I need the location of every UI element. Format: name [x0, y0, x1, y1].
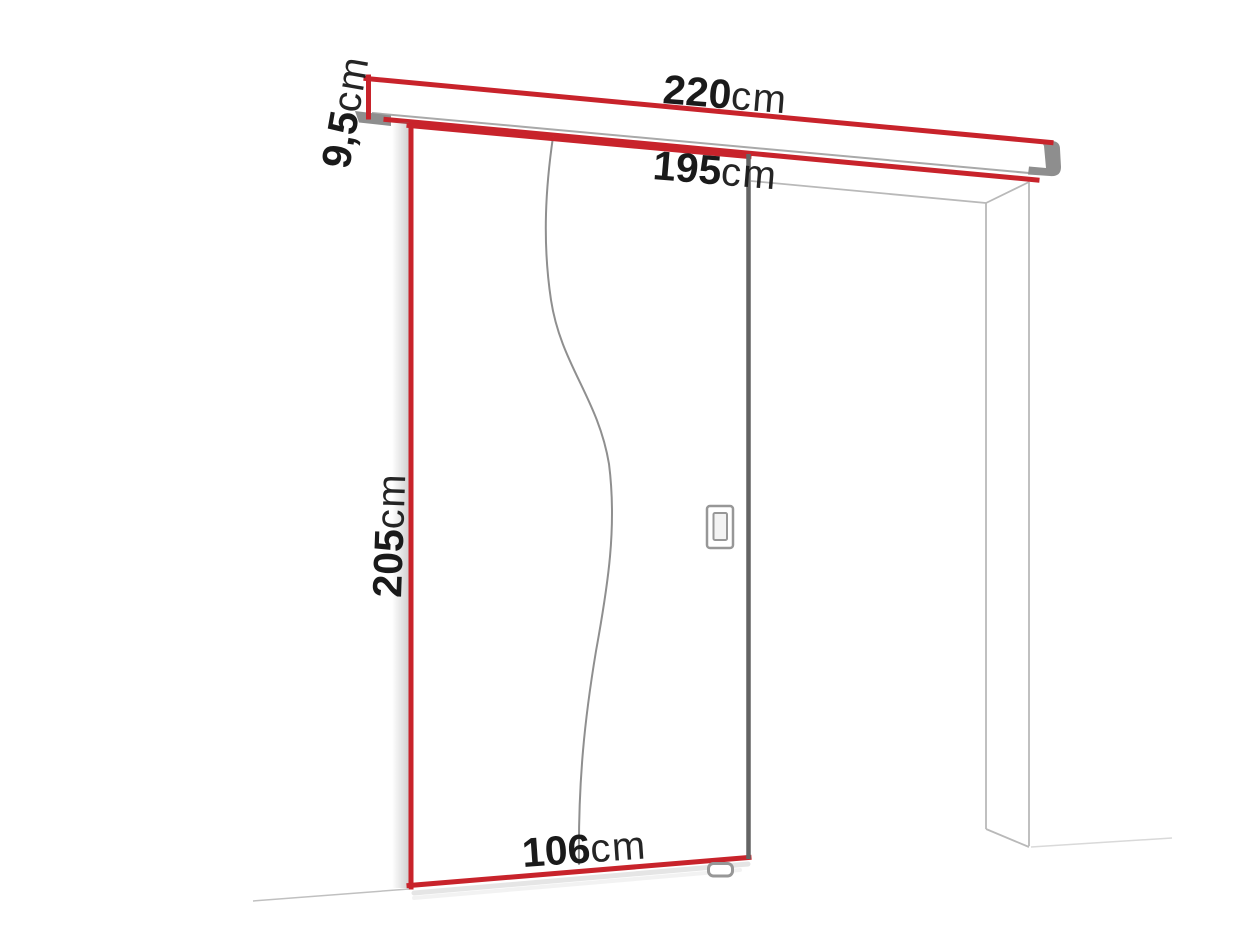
- rail-width-label: 220cm: [661, 66, 789, 122]
- passage-width-value: 195: [651, 142, 723, 194]
- door-height-unit: cm: [368, 472, 414, 530]
- sliding-door: [253, 122, 749, 901]
- door-handle-recess: [714, 513, 728, 540]
- door-width-unit: cm: [589, 823, 648, 871]
- floor-line-right: [1031, 838, 1172, 847]
- rail-height-value: 9,5: [313, 107, 368, 171]
- floor-line-left: [253, 889, 409, 901]
- frame-jamb-bottom-line: [986, 829, 1029, 847]
- door-dimension-diagram: 220cm 195cm 9,5cm 205cm 106cm: [0, 0, 1247, 935]
- rail-width-value: 220: [661, 66, 733, 118]
- rail-width-unit: cm: [729, 74, 789, 123]
- door-height-label: 205cm: [364, 472, 414, 598]
- doorway-frame: [751, 181, 1172, 847]
- rail-height-label: 9,5cm: [313, 52, 378, 172]
- door-height-value: 205: [364, 528, 412, 598]
- door-width-value: 106: [520, 825, 591, 876]
- door-panel: [411, 126, 747, 884]
- frame-top-corner-line: [986, 182, 1029, 203]
- door-width-label: 106cm: [520, 821, 648, 876]
- diagram-svg: 220cm 195cm 9,5cm 205cm 106cm: [0, 0, 1247, 935]
- floor-guide: [709, 864, 733, 877]
- passage-width-unit: cm: [719, 150, 779, 199]
- rail-right-cap: [1028, 140, 1061, 176]
- frame-head-line: [751, 181, 986, 203]
